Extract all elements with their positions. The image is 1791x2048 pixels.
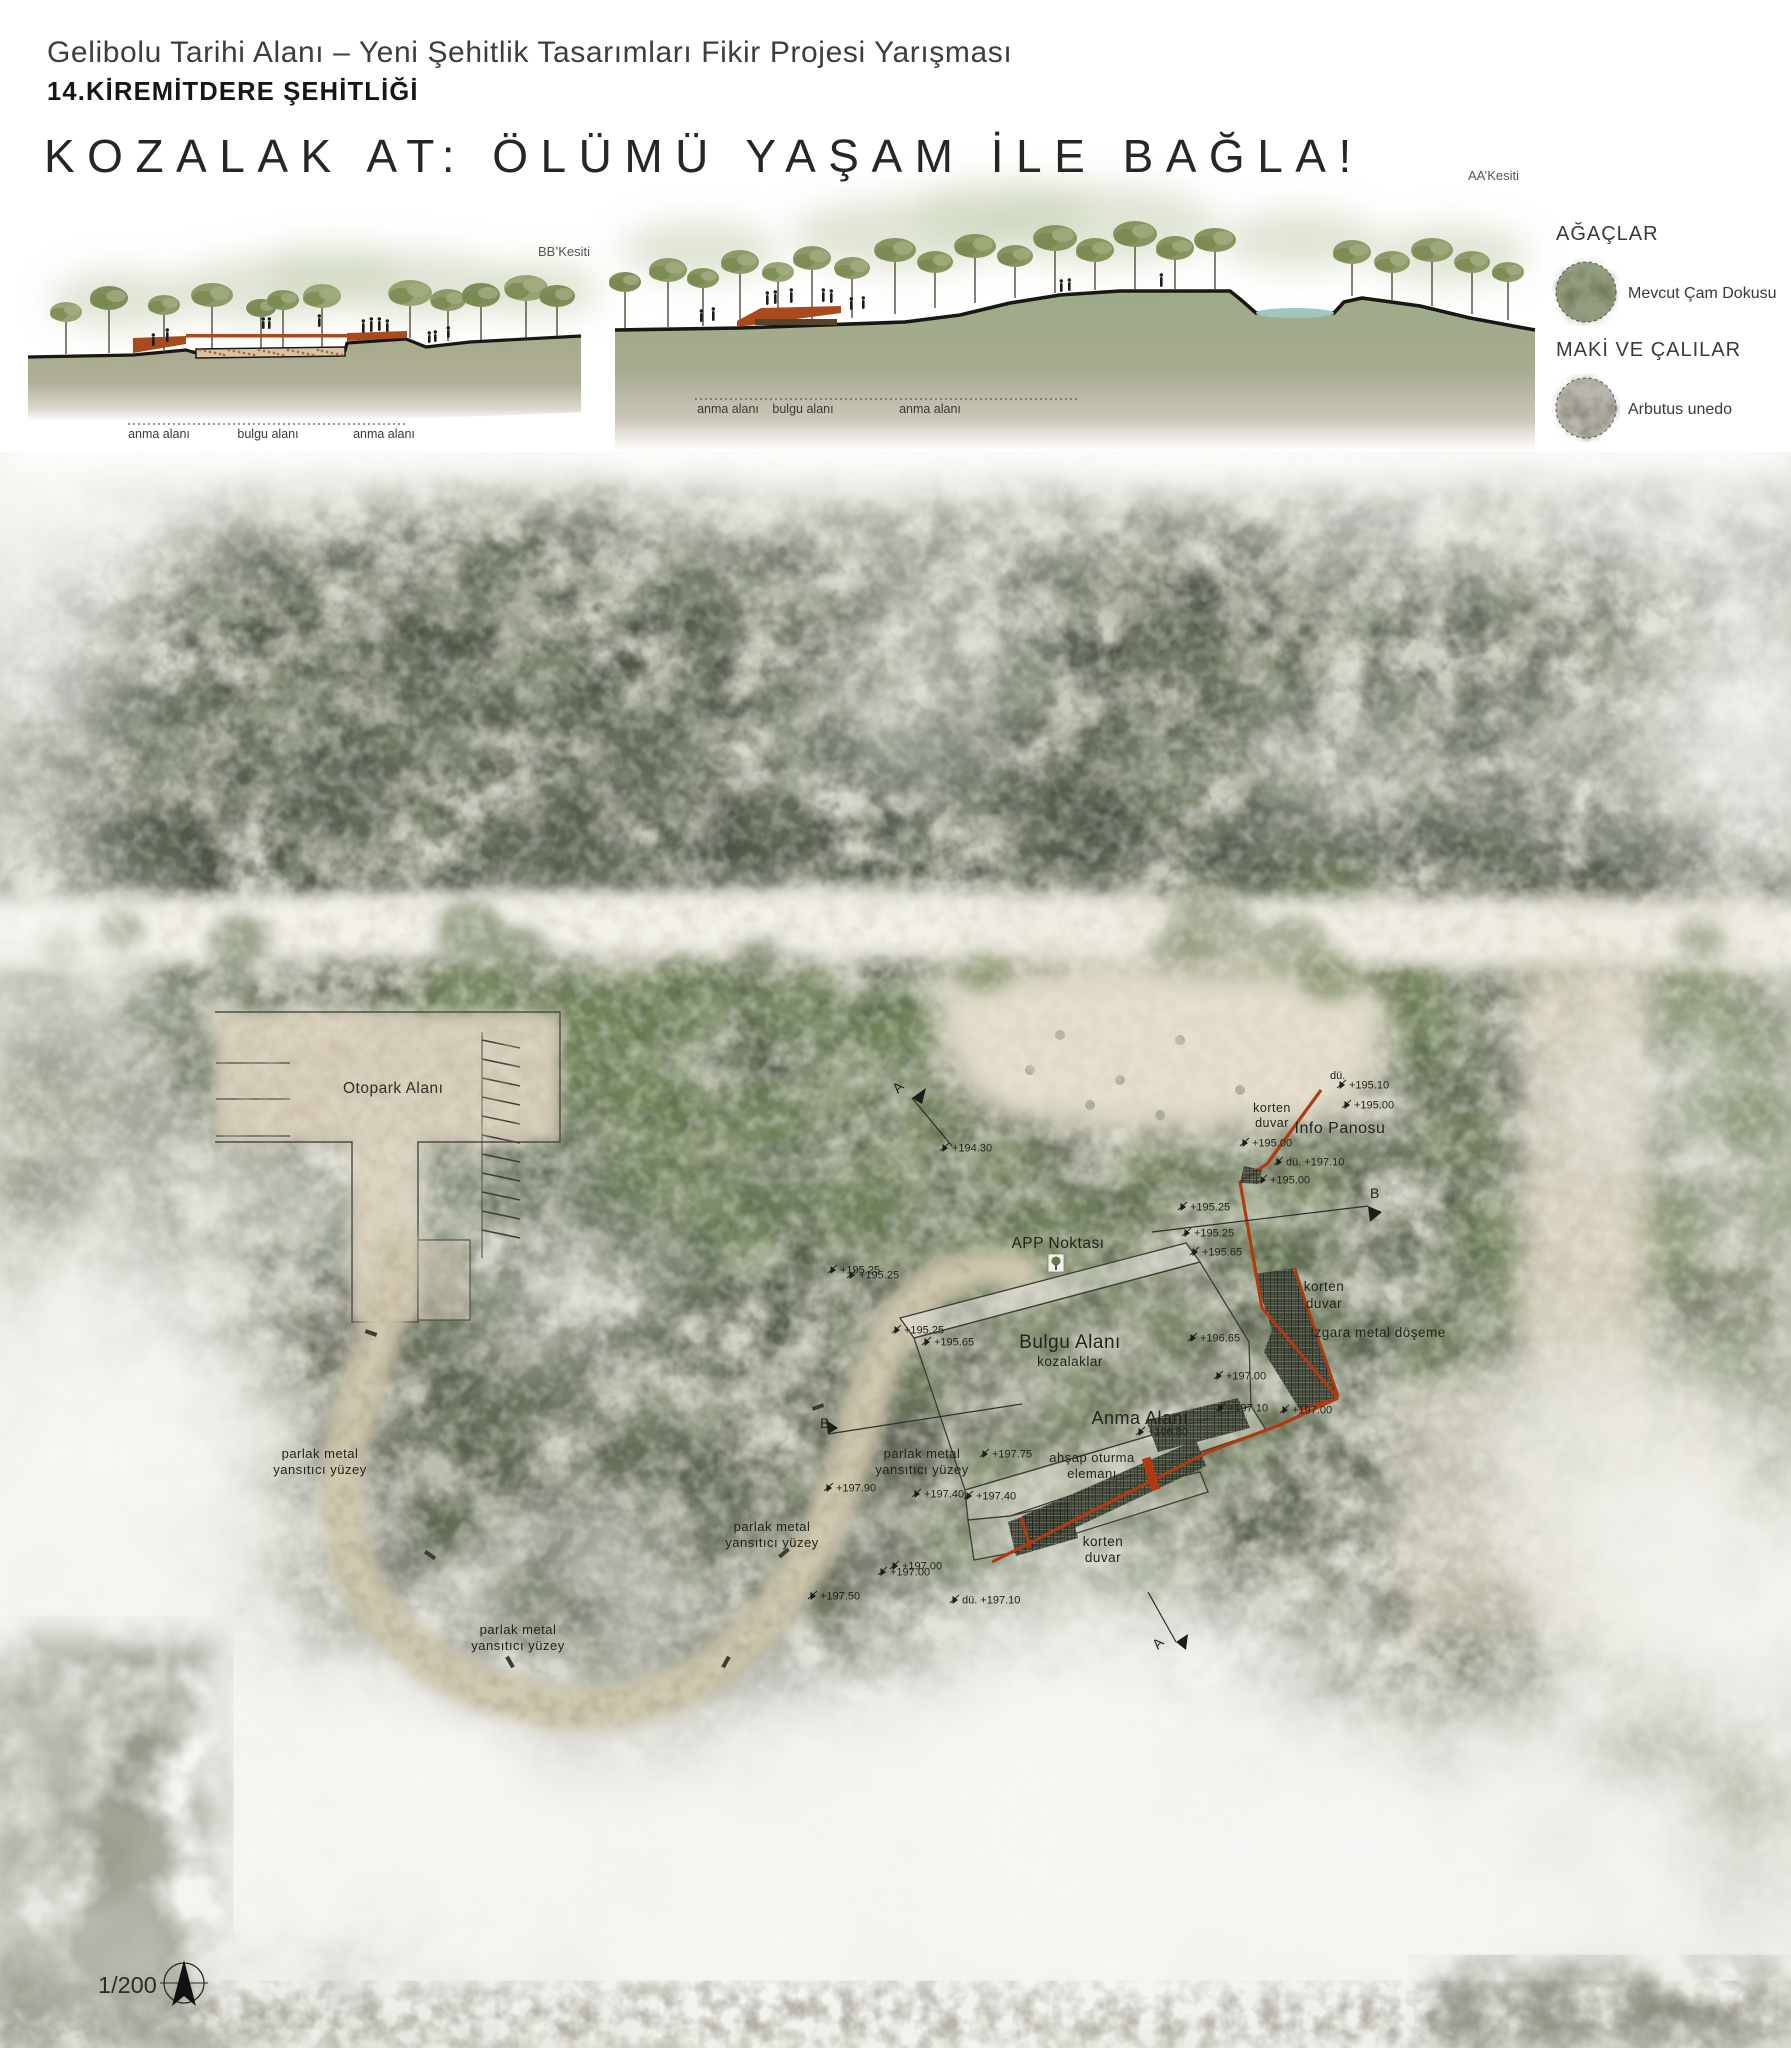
svg-text:+194.30: +194.30 bbox=[952, 1143, 992, 1155]
svg-text:+196.80: +196.80 bbox=[1148, 1427, 1188, 1439]
svg-text:parlak metal: parlak metal bbox=[734, 1519, 811, 1534]
svg-text:MAKİ VE ÇALILAR: MAKİ VE ÇALILAR bbox=[1556, 338, 1741, 361]
svg-text:Gelibolu Tarihi Alanı – Yeni Ş: Gelibolu Tarihi Alanı – Yeni Şehitlik Ta… bbox=[47, 36, 1012, 69]
svg-text:dü. +197.10: dü. +197.10 bbox=[1286, 1157, 1344, 1169]
svg-text:anma alanı: anma alanı bbox=[128, 427, 190, 441]
svg-text:anma alanı: anma alanı bbox=[353, 427, 415, 441]
svg-text:+195.65: +195.65 bbox=[934, 1337, 974, 1349]
svg-text:anma alanı: anma alanı bbox=[697, 402, 759, 416]
svg-text:duvar: duvar bbox=[1255, 1116, 1289, 1130]
svg-text:+195.00: +195.00 bbox=[1270, 1175, 1310, 1187]
svg-text:dü. +197.10: dü. +197.10 bbox=[962, 1595, 1020, 1607]
svg-text:korten: korten bbox=[1253, 1101, 1291, 1115]
svg-text:+195.25: +195.25 bbox=[1194, 1228, 1234, 1240]
svg-text:+197.50: +197.50 bbox=[820, 1591, 860, 1603]
svg-text:+195.25: +195.25 bbox=[904, 1325, 944, 1337]
svg-text:bulgu alanı: bulgu alanı bbox=[237, 427, 298, 441]
svg-text:parlak metal: parlak metal bbox=[282, 1446, 359, 1461]
svg-text:yansıtıcı yüzey: yansıtıcı yüzey bbox=[273, 1462, 366, 1477]
svg-text:+195.00: +195.00 bbox=[1252, 1138, 1292, 1150]
svg-text:Arbutus unedo: Arbutus unedo bbox=[1628, 401, 1732, 418]
svg-text:yansıtıcı yüzey: yansıtıcı yüzey bbox=[725, 1535, 818, 1550]
svg-text:ahşap oturma: ahşap oturma bbox=[1049, 1450, 1135, 1465]
svg-text:+197.00: +197.00 bbox=[1226, 1371, 1266, 1383]
svg-text:B: B bbox=[820, 1415, 829, 1431]
svg-text:+197.90: +197.90 bbox=[836, 1483, 876, 1495]
svg-text:AĞAÇLAR: AĞAÇLAR bbox=[1556, 222, 1659, 245]
svg-text:APP Noktası: APP Noktası bbox=[1011, 1235, 1104, 1252]
svg-text:+195.10: +195.10 bbox=[1349, 1080, 1389, 1092]
svg-text:yansıtıcı yüzey: yansıtıcı yüzey bbox=[471, 1638, 564, 1653]
svg-text:+197.40: +197.40 bbox=[976, 1491, 1016, 1503]
svg-text:yansıtıcı yüzey: yansıtıcı yüzey bbox=[875, 1462, 968, 1477]
svg-text:+195.25: +195.25 bbox=[840, 1265, 880, 1277]
svg-text:+195.00: +195.00 bbox=[1354, 1100, 1394, 1112]
svg-text:+196.65: +196.65 bbox=[1200, 1333, 1240, 1345]
svg-text:B: B bbox=[1370, 1185, 1379, 1201]
svg-text:14.KİREMİTDERE ŞEHİTLİĞİ: 14.KİREMİTDERE ŞEHİTLİĞİ bbox=[47, 77, 419, 106]
svg-text:KOZALAK AT: ÖLÜMÜ YAŞAM İLE BA: KOZALAK AT: ÖLÜMÜ YAŞAM İLE BAĞLA! bbox=[44, 130, 1364, 182]
svg-text:parlak metal: parlak metal bbox=[884, 1446, 961, 1461]
svg-text:duvar: duvar bbox=[1085, 1550, 1121, 1565]
svg-text:Mevcut Çam Dokusu: Mevcut Çam Dokusu bbox=[1628, 285, 1777, 302]
svg-text:parlak metal: parlak metal bbox=[480, 1622, 557, 1637]
svg-text:BB’Kesiti: BB’Kesiti bbox=[538, 244, 590, 259]
svg-text:1/200: 1/200 bbox=[98, 1972, 157, 1998]
svg-text:korten: korten bbox=[1083, 1534, 1124, 1549]
svg-text:Otopark Alanı: Otopark Alanı bbox=[343, 1080, 443, 1097]
svg-text:kozalaklar: kozalaklar bbox=[1037, 1354, 1103, 1369]
svg-text:Bulgu Alanı: Bulgu Alanı bbox=[1019, 1332, 1121, 1353]
svg-text:elemanı: elemanı bbox=[1067, 1466, 1117, 1481]
svg-text:+197.40: +197.40 bbox=[924, 1489, 964, 1501]
svg-text:ızgara metal döşeme: ızgara metal döşeme bbox=[1310, 1325, 1446, 1340]
svg-text:korten: korten bbox=[1304, 1279, 1345, 1294]
svg-text:bulgu alanı: bulgu alanı bbox=[772, 402, 833, 416]
svg-text:+197.00: +197.00 bbox=[890, 1567, 930, 1579]
svg-text:duvar: duvar bbox=[1306, 1296, 1342, 1311]
svg-text:Anma Alanı: Anma Alanı bbox=[1091, 1408, 1188, 1428]
svg-text:dü.: dü. bbox=[1330, 1070, 1345, 1082]
svg-text:+195.25: +195.25 bbox=[1190, 1202, 1230, 1214]
svg-text:+197.75: +197.75 bbox=[992, 1449, 1032, 1461]
svg-text:Info Panosu: Info Panosu bbox=[1295, 1120, 1386, 1137]
svg-text:+195.65: +195.65 bbox=[1202, 1247, 1242, 1259]
svg-text:+197.10: +197.10 bbox=[1228, 1403, 1268, 1415]
svg-text:+197.00: +197.00 bbox=[1292, 1405, 1332, 1417]
svg-text:AA’Kesiti: AA’Kesiti bbox=[1468, 168, 1519, 183]
svg-text:anma alanı: anma alanı bbox=[899, 402, 961, 416]
